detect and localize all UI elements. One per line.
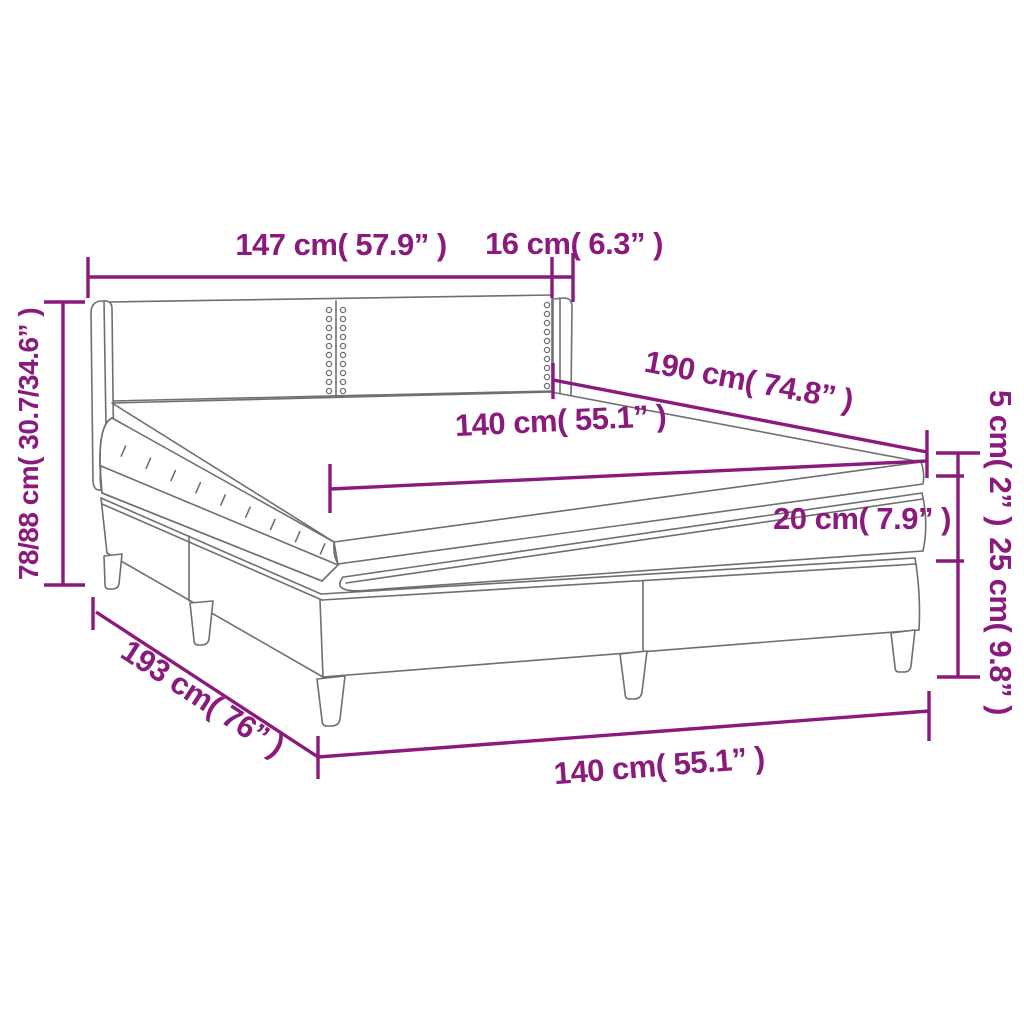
stud-icon <box>326 325 331 330</box>
leg-3 <box>317 676 345 726</box>
stud-icon <box>326 307 331 312</box>
stud-icon <box>326 352 331 357</box>
label-headboard-width: 147 cm( 57.9” ) <box>235 227 446 262</box>
label-mattress-height: 20 cm( 7.9” ) <box>773 501 951 536</box>
stud-icon <box>340 334 345 339</box>
dimension-headboard-width: 147 cm( 57.9” ) <box>88 227 552 298</box>
label-height-range: 78/88 cm( 30.7/34.6” ) <box>13 308 44 580</box>
leg-2 <box>190 601 213 645</box>
stud-icon <box>544 356 549 361</box>
bed-dimension-diagram: 147 cm( 57.9” ) 16 cm( 6.3” ) 78/88 cm( … <box>0 0 1024 1024</box>
label-topper-height: 5 cm( 2” ) <box>983 390 1018 526</box>
base-foot-left-corner <box>320 600 323 677</box>
stud-icon <box>340 316 345 321</box>
stud-icon <box>326 370 331 375</box>
headboard-top-edge <box>110 295 552 302</box>
dimension-base-width: 140 cm( 55.1” ) <box>318 691 929 791</box>
label-base-height: 25 cm( 9.8” ) <box>983 537 1018 715</box>
stud-icon <box>326 316 331 321</box>
label-base-length: 193 cm( 76” ) <box>115 633 290 764</box>
base-right-sliver <box>915 558 920 630</box>
stud-icon <box>340 388 345 393</box>
stud-icon <box>544 347 549 352</box>
headboard-right-wing <box>553 298 572 402</box>
stud-icon <box>326 361 331 366</box>
dimension-right-stack: 5 cm( 2” ) 25 cm( 9.8” ) <box>936 390 1018 715</box>
base-foot-top-piping-2 <box>322 564 916 600</box>
leg-5 <box>891 630 915 672</box>
stud-icon <box>340 361 345 366</box>
stud-icon <box>340 307 345 312</box>
stud-icon <box>340 370 345 375</box>
stud-icon <box>340 343 345 348</box>
leg-4 <box>620 651 647 699</box>
dimension-height-range: 78/88 cm( 30.7/34.6” ) <box>13 302 85 585</box>
stud-icon <box>326 388 331 393</box>
base-foot-top-piping-1 <box>321 558 915 594</box>
stud-icon <box>544 374 549 379</box>
stud-icon <box>340 325 345 330</box>
stud-icon <box>326 334 331 339</box>
label-length: 190 cm( 74.8” ) <box>642 344 856 418</box>
label-base-width: 140 cm( 55.1” ) <box>552 740 765 791</box>
stud-icon <box>544 365 549 370</box>
headboard-studs <box>326 302 549 402</box>
dimension-wing-width: 16 cm( 6.3” ) <box>485 226 663 302</box>
stud-icon <box>544 338 549 343</box>
stud-icon <box>544 311 549 316</box>
stud-icon <box>544 383 549 388</box>
diagram-canvas: 147 cm( 57.9” ) 16 cm( 6.3” ) 78/88 cm( … <box>0 0 1024 1024</box>
stud-icon <box>544 329 549 334</box>
stud-icon <box>326 379 331 384</box>
stud-icon <box>544 302 549 307</box>
stud-icon <box>326 343 331 348</box>
leg-1 <box>104 554 122 589</box>
stud-icon <box>340 379 345 384</box>
stud-icon <box>340 352 345 357</box>
stud-icon <box>544 320 549 325</box>
label-wing-width: 16 cm( 6.3” ) <box>485 226 663 261</box>
dimension-mattress-height: 20 cm( 7.9” ) <box>773 501 951 536</box>
